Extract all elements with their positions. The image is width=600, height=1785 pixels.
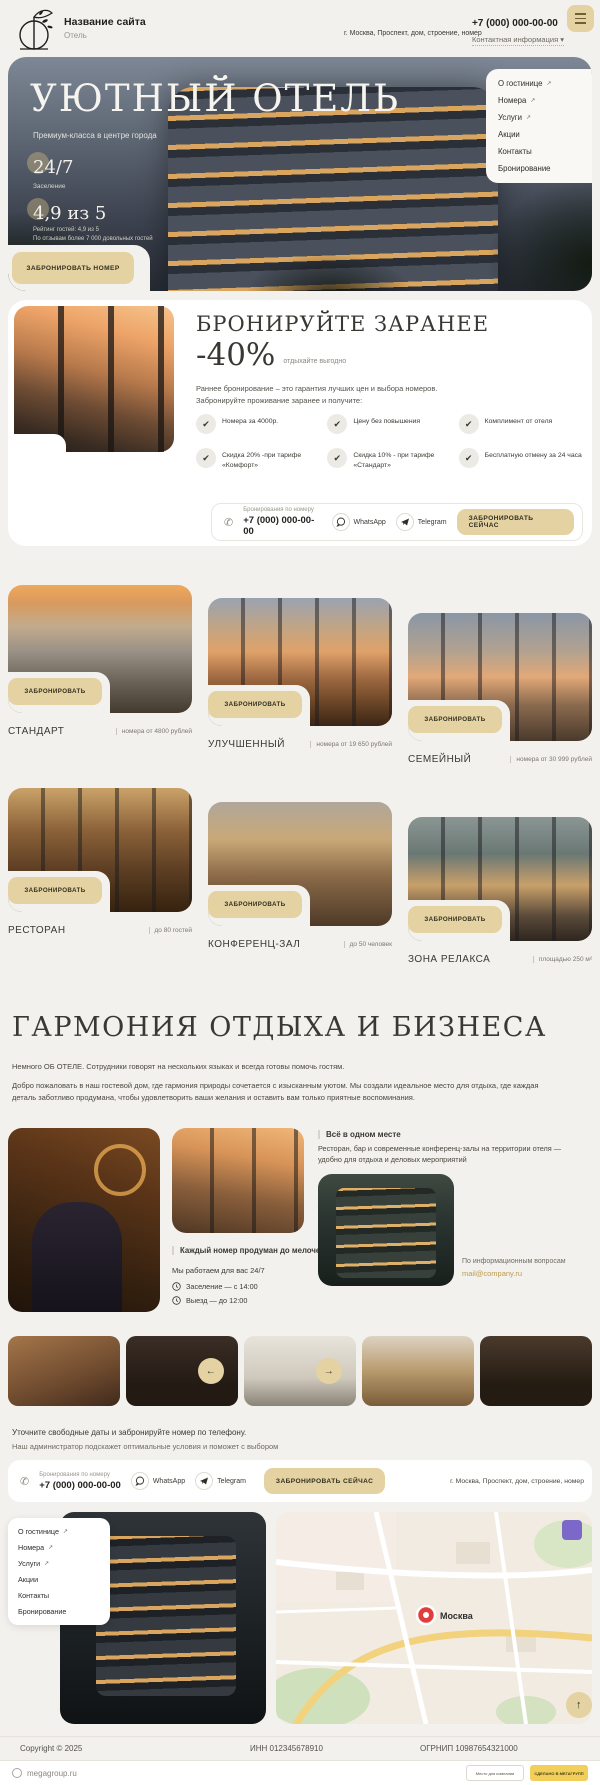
whatsapp-link[interactable]: WhatsApp xyxy=(332,513,386,531)
phone-block: Бронирования по номеру +7 (000) 000-00-0… xyxy=(243,507,321,537)
benefit-item: ✔Номера за 4000р. xyxy=(196,414,319,434)
hero-stat-rating: 4,9 из 5 Рейтинг гостей: 4,9 из 5 По отз… xyxy=(33,203,153,242)
builder-strip: megagroup.ru Место для компании СДЕЛАНО … xyxy=(0,1760,600,1785)
whatsapp-icon xyxy=(131,1472,149,1490)
book-conference-button[interactable]: ЗАБРОНИРОВАТЬ xyxy=(208,891,302,918)
cta-line1: Уточните свободные даты и забронируйте н… xyxy=(12,1428,246,1437)
discount-note: отдыхайте выгодно xyxy=(283,358,346,371)
footer-nav-rooms[interactable]: Номера↗ xyxy=(18,1543,102,1552)
room-card-standard: ЗАБРОНИРОВАТЬ СТАНДАРТ номера от 4800 ру… xyxy=(8,585,192,737)
page: Название сайта Отель г. Москва, Проспект… xyxy=(0,0,600,1785)
ogrnip-number: ОГРНИП 10987654321000 xyxy=(420,1744,518,1753)
early-lead2: Забронируйте проживание заранее и получи… xyxy=(196,396,362,405)
improved-room-photo: ЗАБРОНИРОВАТЬ xyxy=(208,598,392,726)
megagroup-link[interactable]: megagroup.ru xyxy=(27,1769,77,1778)
cta-address: г. Москва, Проспект, дом, строение, номе… xyxy=(446,1478,584,1485)
telegram-icon xyxy=(396,513,414,531)
room-detail-caption: Каждый номер продуман до мелочей xyxy=(172,1246,332,1255)
gallery-photo-interior xyxy=(480,1336,592,1406)
info-questions-label: По информационным вопросам xyxy=(462,1258,586,1265)
room-name: УЛУЧШЕННЫЙ xyxy=(208,739,285,750)
lounge-photo xyxy=(172,1128,304,1233)
scroll-to-top-button[interactable]: ↑ xyxy=(566,1692,592,1718)
room-card-improved: ЗАБРОНИРОВАТЬ УЛУЧШЕННЫЙ номера от 19 65… xyxy=(208,598,392,750)
cta-line2: Наш администратор подскажет оптимальные … xyxy=(12,1442,278,1451)
made-in-badge[interactable]: СДЕЛАНО В МЕГАГРУПП xyxy=(530,1765,588,1781)
room-price: номера от 19 650 рублей xyxy=(310,741,392,748)
room-price: номера от 30 999 рублей xyxy=(510,756,592,763)
carousel-next-button[interactable]: → xyxy=(316,1358,342,1384)
external-arrow-icon: ↗ xyxy=(530,97,535,104)
phone-block: Бронирования по номеру +7 (000) 000-00-0… xyxy=(39,1472,121,1491)
legal-row: Copyright © 2025 ИНН 012345678910 ОГРНИП… xyxy=(0,1736,600,1760)
discount-value: -40% xyxy=(196,340,275,371)
hero-stat-hours: 24/7 Заселение xyxy=(33,157,73,190)
room-name: СТАНДАРТ xyxy=(8,726,64,737)
service-name: КОНФЕРЕНЦ-ЗАЛ xyxy=(208,939,300,950)
service-card-relax: ЗАБРОНИРОВАТЬ ЗОНА РЕЛАКСА площадью 250 … xyxy=(408,817,592,965)
menu-icon xyxy=(575,13,586,15)
nav-item-services[interactable]: Услуги↗ xyxy=(498,113,582,122)
book-standard-button[interactable]: ЗАБРОНИРОВАТЬ xyxy=(8,678,102,705)
conference-hall-photo: ЗАБРОНИРОВАТЬ xyxy=(208,802,392,926)
check-icon: ✔ xyxy=(327,414,347,434)
book-family-button[interactable]: ЗАБРОНИРОВАТЬ xyxy=(408,706,502,733)
arrow-up-icon: ↑ xyxy=(576,1699,582,1711)
about-paragraph-1: Немного ОБ ОТЕЛЕ. Сотрудники говорят на … xyxy=(12,1062,530,1071)
footer-nav-about[interactable]: О гостинице↗ xyxy=(18,1527,102,1536)
service-info: до 50 человек xyxy=(344,941,392,948)
map-canvas: Москва xyxy=(276,1512,592,1724)
standard-room-photo: ЗАБРОНИРОВАТЬ xyxy=(8,585,192,713)
company-badge[interactable]: Место для компании xyxy=(466,1765,524,1781)
nav-item-contacts[interactable]: Контакты xyxy=(498,147,582,156)
benefit-item: ✔Комплимент от отеля xyxy=(459,414,582,434)
carousel-prev-button[interactable]: ← xyxy=(198,1358,224,1384)
relax-zone-photo: ЗАБРОНИРОВАТЬ xyxy=(408,817,592,941)
gallery-photo-guests xyxy=(362,1336,474,1406)
service-card-conference: ЗАБРОНИРОВАТЬ КОНФЕРЕНЦ-ЗАЛ до 50 челове… xyxy=(208,802,392,950)
book-now-button[interactable]: ЗАБРОНИРОВАТЬ СЕЙЧАС xyxy=(457,509,574,535)
early-booking-section: БРОНИРУЙТЕ ЗАРАНЕЕ -40% отдыхайте выгодн… xyxy=(8,300,592,546)
book-relax-button[interactable]: ЗАБРОНИРОВАТЬ xyxy=(408,906,502,933)
service-info: площадью 250 м² xyxy=(533,956,592,963)
nav-item-booking[interactable]: Бронирование xyxy=(498,164,582,173)
footer-contact-bar: ✆ Бронирования по номеру +7 (000) 000-00… xyxy=(8,1460,592,1502)
room-price: номера от 4800 рублей xyxy=(116,728,192,735)
early-lead1: Раннее бронирование – это гарантия лучши… xyxy=(196,384,437,393)
book-room-button[interactable]: ЗАБРОНИРОВАТЬ НОМЕР xyxy=(12,252,134,284)
hotel-building-night-photo xyxy=(318,1174,454,1286)
hero-nav-card: О гостинице↗ Номера↗ Услуги↗ Акции Конта… xyxy=(486,69,592,183)
phone-label: Бронирования по номеру xyxy=(39,1472,121,1478)
whatsapp-icon xyxy=(332,513,350,531)
check-icon: ✔ xyxy=(459,448,479,468)
benefit-item: ✔Скидка 20% -при тарифе «Комфорт» xyxy=(196,448,319,470)
nav-item-promos[interactable]: Акции xyxy=(498,130,582,139)
contact-info-label: Контактная информация xyxy=(472,35,558,44)
about-title: ГАРМОНИЯ ОТДЫХА И БИЗНЕСА xyxy=(12,1012,547,1043)
service-card-restaurant: ЗАБРОНИРОВАТЬ РЕСТОРАН до 80 гостей xyxy=(8,788,192,936)
book-improved-button[interactable]: ЗАБРОНИРОВАТЬ xyxy=(208,691,302,718)
whatsapp-link[interactable]: WhatsApp xyxy=(131,1472,185,1490)
site-logo-icon xyxy=(14,5,60,55)
booking-phone[interactable]: +7 (000) 000-00-00 xyxy=(243,515,321,537)
benefit-item: ✔Бесплатную отмену за 24 часа xyxy=(459,448,582,470)
stat-hours-label: Заселение xyxy=(33,183,73,190)
site-identity: Название сайта Отель xyxy=(64,16,146,40)
one-place-title: Всё в одном месте xyxy=(318,1130,401,1139)
rating-line2: По отзывам более 7 000 довольных гостей xyxy=(33,236,153,242)
about-paragraph-2: Добро пожаловать в наш гостевой дом, где… xyxy=(12,1080,540,1103)
menu-button[interactable] xyxy=(567,5,594,32)
footer-nav-card: О гостинице↗ Номера↗ Услуги↗ Акции Конта… xyxy=(8,1518,110,1625)
nav-item-about[interactable]: О гостинице↗ xyxy=(498,79,582,88)
arrow-right-icon: → xyxy=(324,1366,334,1377)
gallery-photo-staff xyxy=(8,1336,120,1406)
check-icon: ✔ xyxy=(196,448,216,468)
chevron-down-icon: ▾ xyxy=(560,35,564,44)
external-arrow-icon: ↗ xyxy=(63,1528,68,1535)
footer-nav-services[interactable]: Услуги↗ xyxy=(18,1559,102,1568)
arrow-left-icon: ← xyxy=(206,1366,216,1377)
one-place-text: Ресторан, бар и современные конференц-за… xyxy=(318,1144,582,1166)
family-room-photo: ЗАБРОНИРОВАТЬ xyxy=(408,613,592,741)
nav-item-rooms[interactable]: Номера↗ xyxy=(498,96,582,105)
service-info: до 80 гостей xyxy=(149,927,193,934)
clock-icon xyxy=(172,1282,181,1291)
copyright: Copyright © 2025 xyxy=(20,1744,82,1753)
benefit-item: ✔Скидка 10% - при тарифе «Стандарт» xyxy=(327,448,450,470)
site-type: Отель xyxy=(64,31,146,40)
inn-number: ИНН 012345678910 xyxy=(250,1744,323,1753)
telegram-icon xyxy=(195,1472,213,1490)
checkout-row: Выезд — до 12:00 xyxy=(172,1296,247,1305)
hero-subtitle: Премиум-класса в центре города xyxy=(33,131,157,140)
rating-value: 4,9 из 5 xyxy=(33,203,153,224)
check-icon: ✔ xyxy=(459,414,479,434)
map-city-label: Москва xyxy=(440,1611,474,1621)
phone-label: Бронирования по номеру xyxy=(243,507,321,513)
location-map[interactable]: Москва xyxy=(276,1512,592,1724)
check-icon: ✔ xyxy=(327,448,347,468)
hero-title: УЮТНЫЙ ОТЕЛЬ xyxy=(30,77,400,120)
site-name: Название сайта xyxy=(64,16,146,28)
external-arrow-icon: ↗ xyxy=(44,1560,49,1567)
book-now-button[interactable]: ЗАБРОНИРОВАТЬ СЕЙЧАС xyxy=(264,1468,385,1494)
room-name: СЕМЕЙНЫЙ xyxy=(408,754,471,765)
book-restaurant-button[interactable]: ЗАБРОНИРОВАТЬ xyxy=(8,877,102,904)
rating-line1: Рейтинг гостей: 4,9 из 5 xyxy=(33,227,153,233)
header-contact-block: +7 (000) 000-00-00 Контактная информация… xyxy=(472,18,564,47)
hero-section: УЮТНЫЙ ОТЕЛЬ Премиум-класса в центре гор… xyxy=(8,57,592,291)
early-booking-title: БРОНИРУЙТЕ ЗАРАНЕЕ xyxy=(196,312,489,336)
builder-badges: Место для компании СДЕЛАНО В МЕГАГРУПП xyxy=(466,1765,588,1781)
email-link[interactable]: mail@company.ru xyxy=(462,1269,522,1278)
external-arrow-icon: ↗ xyxy=(546,80,551,87)
checkin-row: Заселение — с 14:00 xyxy=(172,1282,258,1291)
booking-contact-bar: ✆ Бронирования по номеру +7 (000) 000-00… xyxy=(211,503,583,541)
telegram-link[interactable]: Telegram xyxy=(195,1472,246,1490)
header-phone[interactable]: +7 (000) 000-00-00 xyxy=(472,18,564,29)
receptionist-photo xyxy=(8,1128,160,1312)
discount-row: -40% отдыхайте выгодно xyxy=(196,340,346,371)
work-hours: Мы работаем для вас 24/7 xyxy=(172,1266,265,1275)
external-arrow-icon: ↗ xyxy=(526,114,531,121)
service-name: ЗОНА РЕЛАКСА xyxy=(408,954,490,965)
booking-phone[interactable]: +7 (000) 000-00-00 xyxy=(39,1480,121,1491)
restaurant-photo: ЗАБРОНИРОВАТЬ xyxy=(8,788,192,912)
external-arrow-icon: ↗ xyxy=(48,1544,53,1551)
hero-cta-notch: ЗАБРОНИРОВАТЬ НОМЕР xyxy=(8,245,150,291)
footer-nav-promos[interactable]: Акции xyxy=(18,1575,102,1584)
clock-icon xyxy=(172,1296,181,1305)
room-card-family: ЗАБРОНИРОВАТЬ СЕМЕЙНЫЙ номера от 30 999 … xyxy=(408,613,592,765)
telegram-link[interactable]: Telegram xyxy=(396,513,447,531)
stat-hours-value: 24/7 xyxy=(33,157,73,178)
footer-nav-contacts[interactable]: Контакты xyxy=(18,1591,102,1600)
header-address: г. Москва, Проспект, дом, строение, номе… xyxy=(344,30,484,37)
service-name: РЕСТОРАН xyxy=(8,925,66,936)
phone-icon: ✆ xyxy=(20,1475,29,1488)
phone-icon: ✆ xyxy=(224,516,233,529)
bedroom-sunset-photo xyxy=(14,306,174,452)
benefit-item: ✔Цену без повышения xyxy=(327,414,450,434)
footer-nav-booking[interactable]: Бронирование xyxy=(18,1607,102,1616)
check-icon: ✔ xyxy=(196,414,216,434)
benefits-grid: ✔Номера за 4000р. ✔Цену без повышения ✔К… xyxy=(196,414,582,470)
contact-info-dropdown[interactable]: Контактная информация ▾ xyxy=(472,35,564,46)
megagroup-logo-icon xyxy=(12,1768,22,1778)
